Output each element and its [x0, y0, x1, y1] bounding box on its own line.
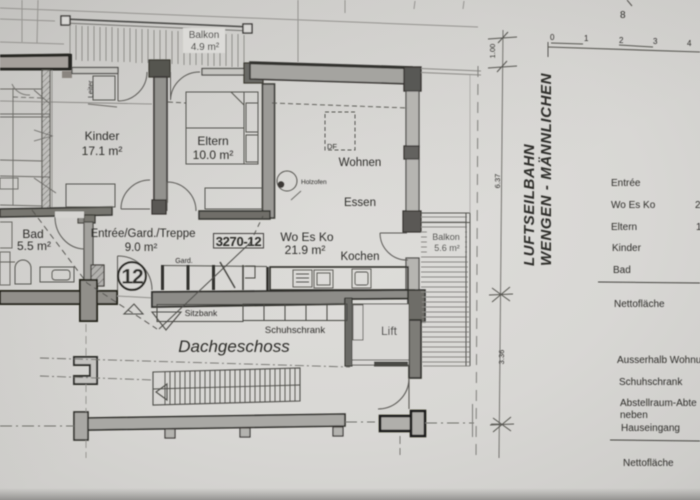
svg-text:3270-12: 3270-12	[216, 234, 262, 249]
svg-text:3.36: 3.36	[497, 350, 506, 365]
svg-text:17.1 m²: 17.1 m²	[82, 144, 123, 158]
svg-text:4.9 m²: 4.9 m²	[191, 42, 220, 53]
svg-text:Entrée: Entrée	[611, 178, 641, 189]
svg-text:WENGEN - MÄNNLICHEN: WENGEN - MÄNNLICHEN	[538, 72, 555, 266]
svg-text:Dachgeschoss: Dachgeschoss	[178, 337, 290, 356]
svg-text:Wo Es Ko: Wo Es Ko	[611, 200, 656, 211]
svg-text:Lift: Lift	[381, 324, 398, 338]
svg-text:Balkon: Balkon	[189, 30, 220, 41]
svg-text:1: 1	[696, 222, 700, 233]
svg-text:Wo Es Ko: Wo Es Ko	[280, 230, 333, 244]
svg-text:6.37: 6.37	[493, 174, 502, 189]
svg-text:4: 4	[687, 39, 692, 48]
svg-text:5.5 m²: 5.5 m²	[17, 239, 51, 253]
svg-text:Leiter: Leiter	[88, 80, 95, 98]
svg-text:Essen: Essen	[344, 197, 376, 209]
svg-text:Gard.: Gard.	[175, 258, 193, 265]
svg-text:neben: neben	[620, 410, 648, 421]
svg-text:5.6 m²: 5.6 m²	[434, 243, 460, 253]
svg-text:Nettofläche: Nettofläche	[614, 299, 665, 310]
svg-text:Eltern: Eltern	[611, 222, 637, 233]
svg-text:Sitzbank: Sitzbank	[185, 308, 218, 318]
svg-text:Balkon: Balkon	[432, 232, 460, 242]
svg-text:Ausserhalb Wohnu: Ausserhalb Wohnu	[617, 355, 700, 366]
svg-text:LUFTSEILBAHN: LUFTSEILBAHN	[521, 143, 538, 266]
svg-text:Wohnen: Wohnen	[339, 157, 382, 169]
svg-text:12: 12	[121, 266, 143, 289]
svg-text:Holzofen: Holzofen	[301, 179, 327, 186]
svg-text:Kochen: Kochen	[340, 251, 379, 263]
svg-text:8: 8	[620, 10, 626, 21]
svg-text:Entrée/Gard./Treppe: Entrée/Gard./Treppe	[90, 228, 195, 240]
svg-text:Nettofläche: Nettofläche	[623, 458, 674, 469]
svg-text:DF: DF	[327, 142, 337, 151]
svg-text:Kinder: Kinder	[85, 129, 120, 143]
svg-text:2: 2	[619, 36, 624, 45]
svg-text:Abstellraum-Abte: Abstellraum-Abte	[620, 398, 697, 409]
svg-text:1: 1	[584, 34, 589, 43]
svg-text:Kinder: Kinder	[612, 243, 642, 254]
svg-text:Schuhschrank: Schuhschrank	[265, 325, 325, 336]
svg-text:Bad: Bad	[613, 265, 631, 276]
svg-text:Hauseingang: Hauseingang	[621, 423, 680, 434]
svg-text:3: 3	[653, 37, 658, 46]
svg-text:9.0 m²: 9.0 m²	[125, 242, 158, 254]
svg-text:10.0 m²: 10.0 m²	[193, 148, 234, 162]
svg-text:Eltern: Eltern	[197, 134, 228, 148]
svg-text:21.9 m²: 21.9 m²	[285, 243, 326, 257]
svg-text:1.00: 1.00	[488, 44, 497, 59]
svg-text:0: 0	[550, 33, 555, 42]
svg-text:Schuhschrank: Schuhschrank	[619, 377, 683, 388]
svg-text:2: 2	[695, 200, 700, 211]
